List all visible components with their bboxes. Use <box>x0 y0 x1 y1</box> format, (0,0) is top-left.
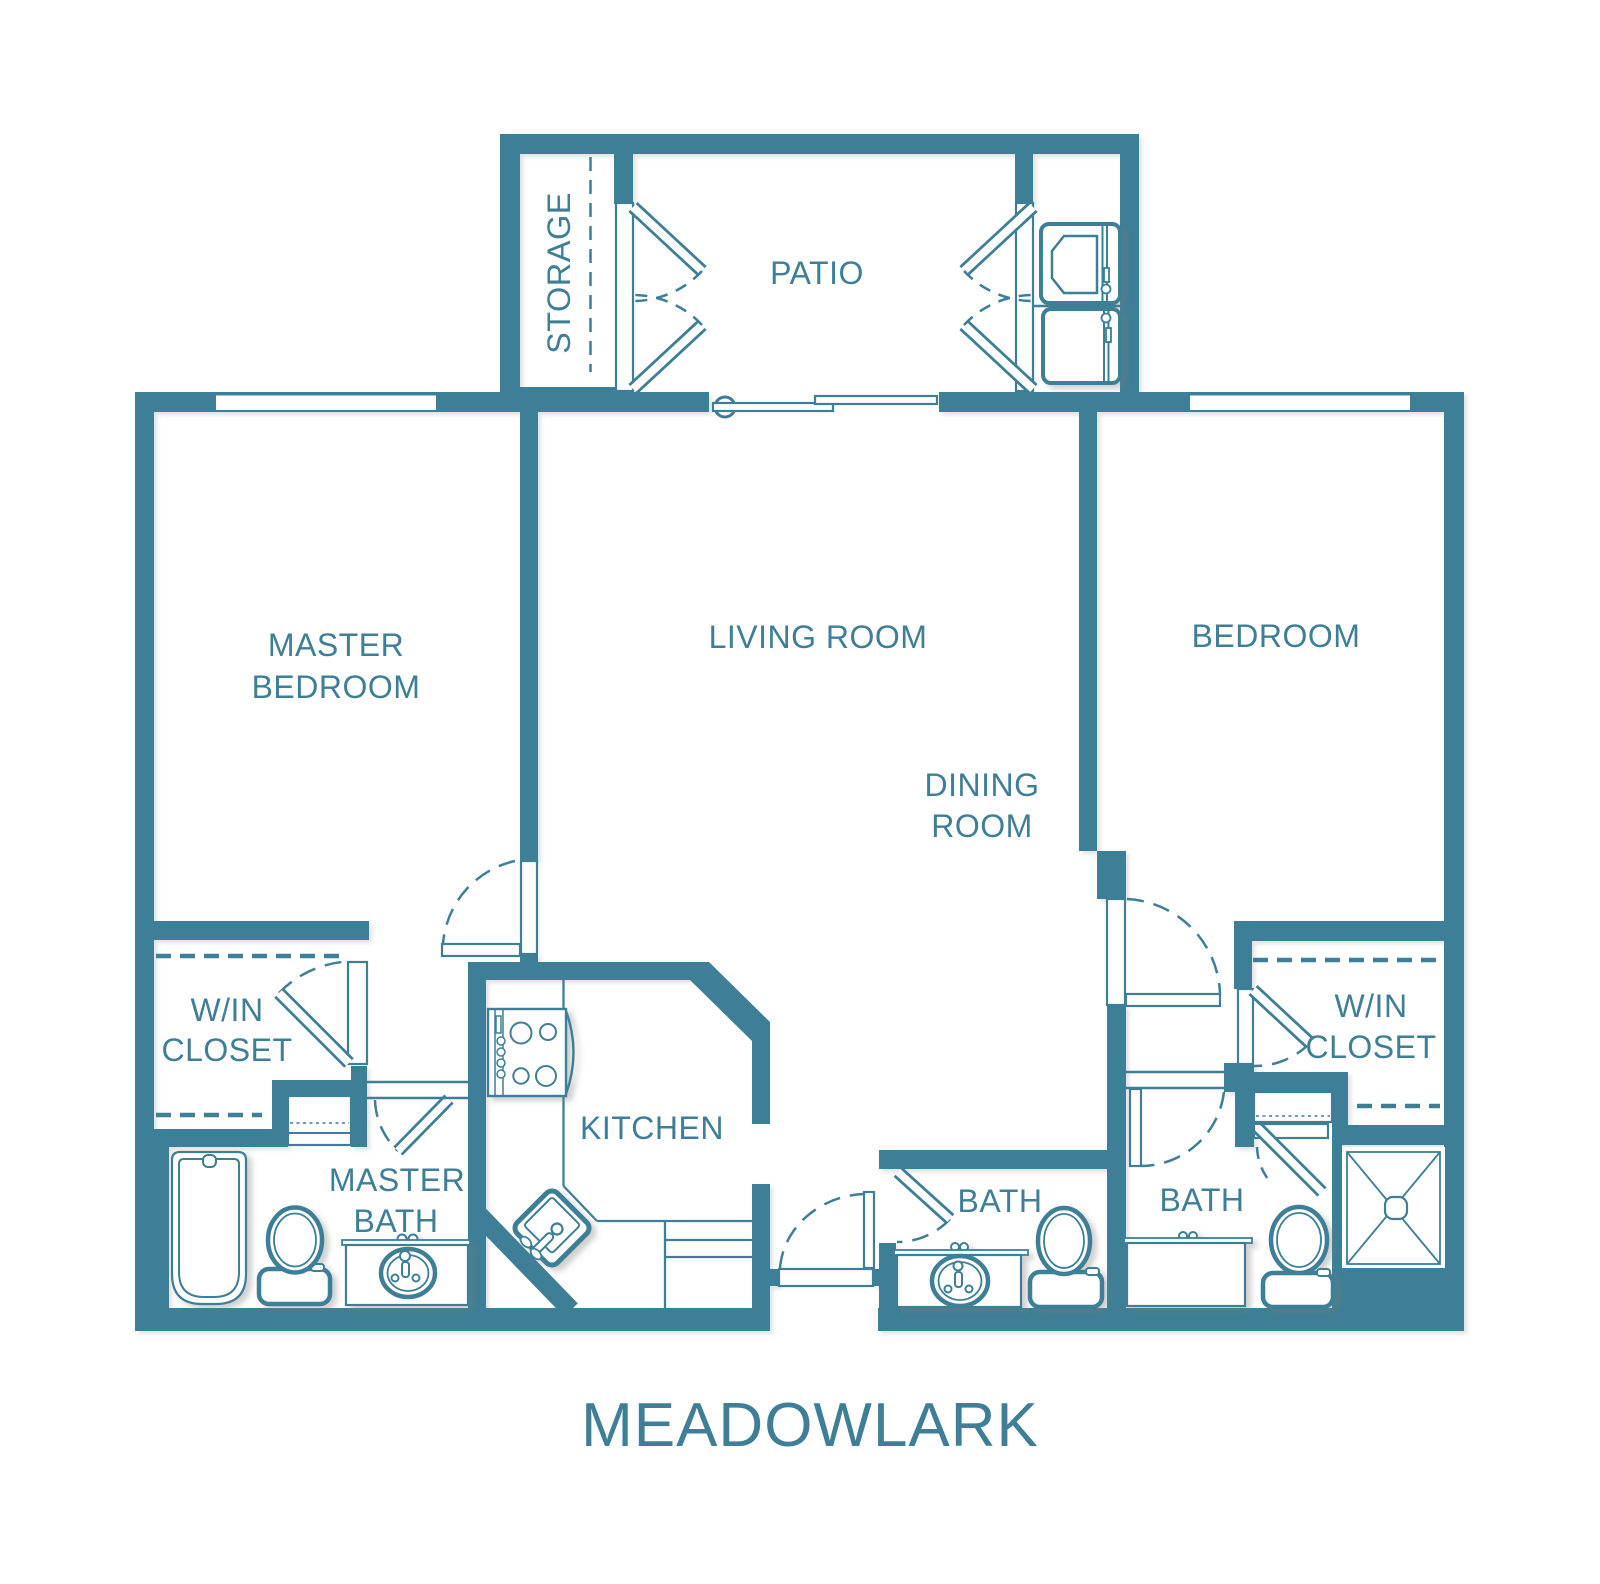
svg-text:MEADOWLARK: MEADOWLARK <box>581 1391 1039 1460</box>
svg-text:DINING: DINING <box>925 767 1040 803</box>
svg-text:MASTER: MASTER <box>268 627 404 663</box>
svg-text:PATIO: PATIO <box>770 255 864 291</box>
svg-text:KITCHEN: KITCHEN <box>580 1110 724 1146</box>
svg-text:LIVING ROOM: LIVING ROOM <box>709 619 928 655</box>
svg-text:BATH: BATH <box>1160 1182 1245 1218</box>
svg-text:BATH: BATH <box>354 1203 439 1239</box>
svg-text:CLOSET: CLOSET <box>1305 1029 1436 1065</box>
svg-text:W/IN: W/IN <box>190 992 263 1028</box>
svg-text:BATH: BATH <box>958 1183 1043 1219</box>
svg-text:BEDROOM: BEDROOM <box>252 669 421 705</box>
svg-text:ROOM: ROOM <box>931 808 1033 844</box>
svg-text:CLOSET: CLOSET <box>161 1032 292 1068</box>
svg-text:MASTER: MASTER <box>329 1162 465 1198</box>
svg-text:BEDROOM: BEDROOM <box>1192 618 1361 654</box>
svg-text:STORAGE: STORAGE <box>541 192 577 354</box>
svg-text:W/IN: W/IN <box>1334 988 1407 1024</box>
